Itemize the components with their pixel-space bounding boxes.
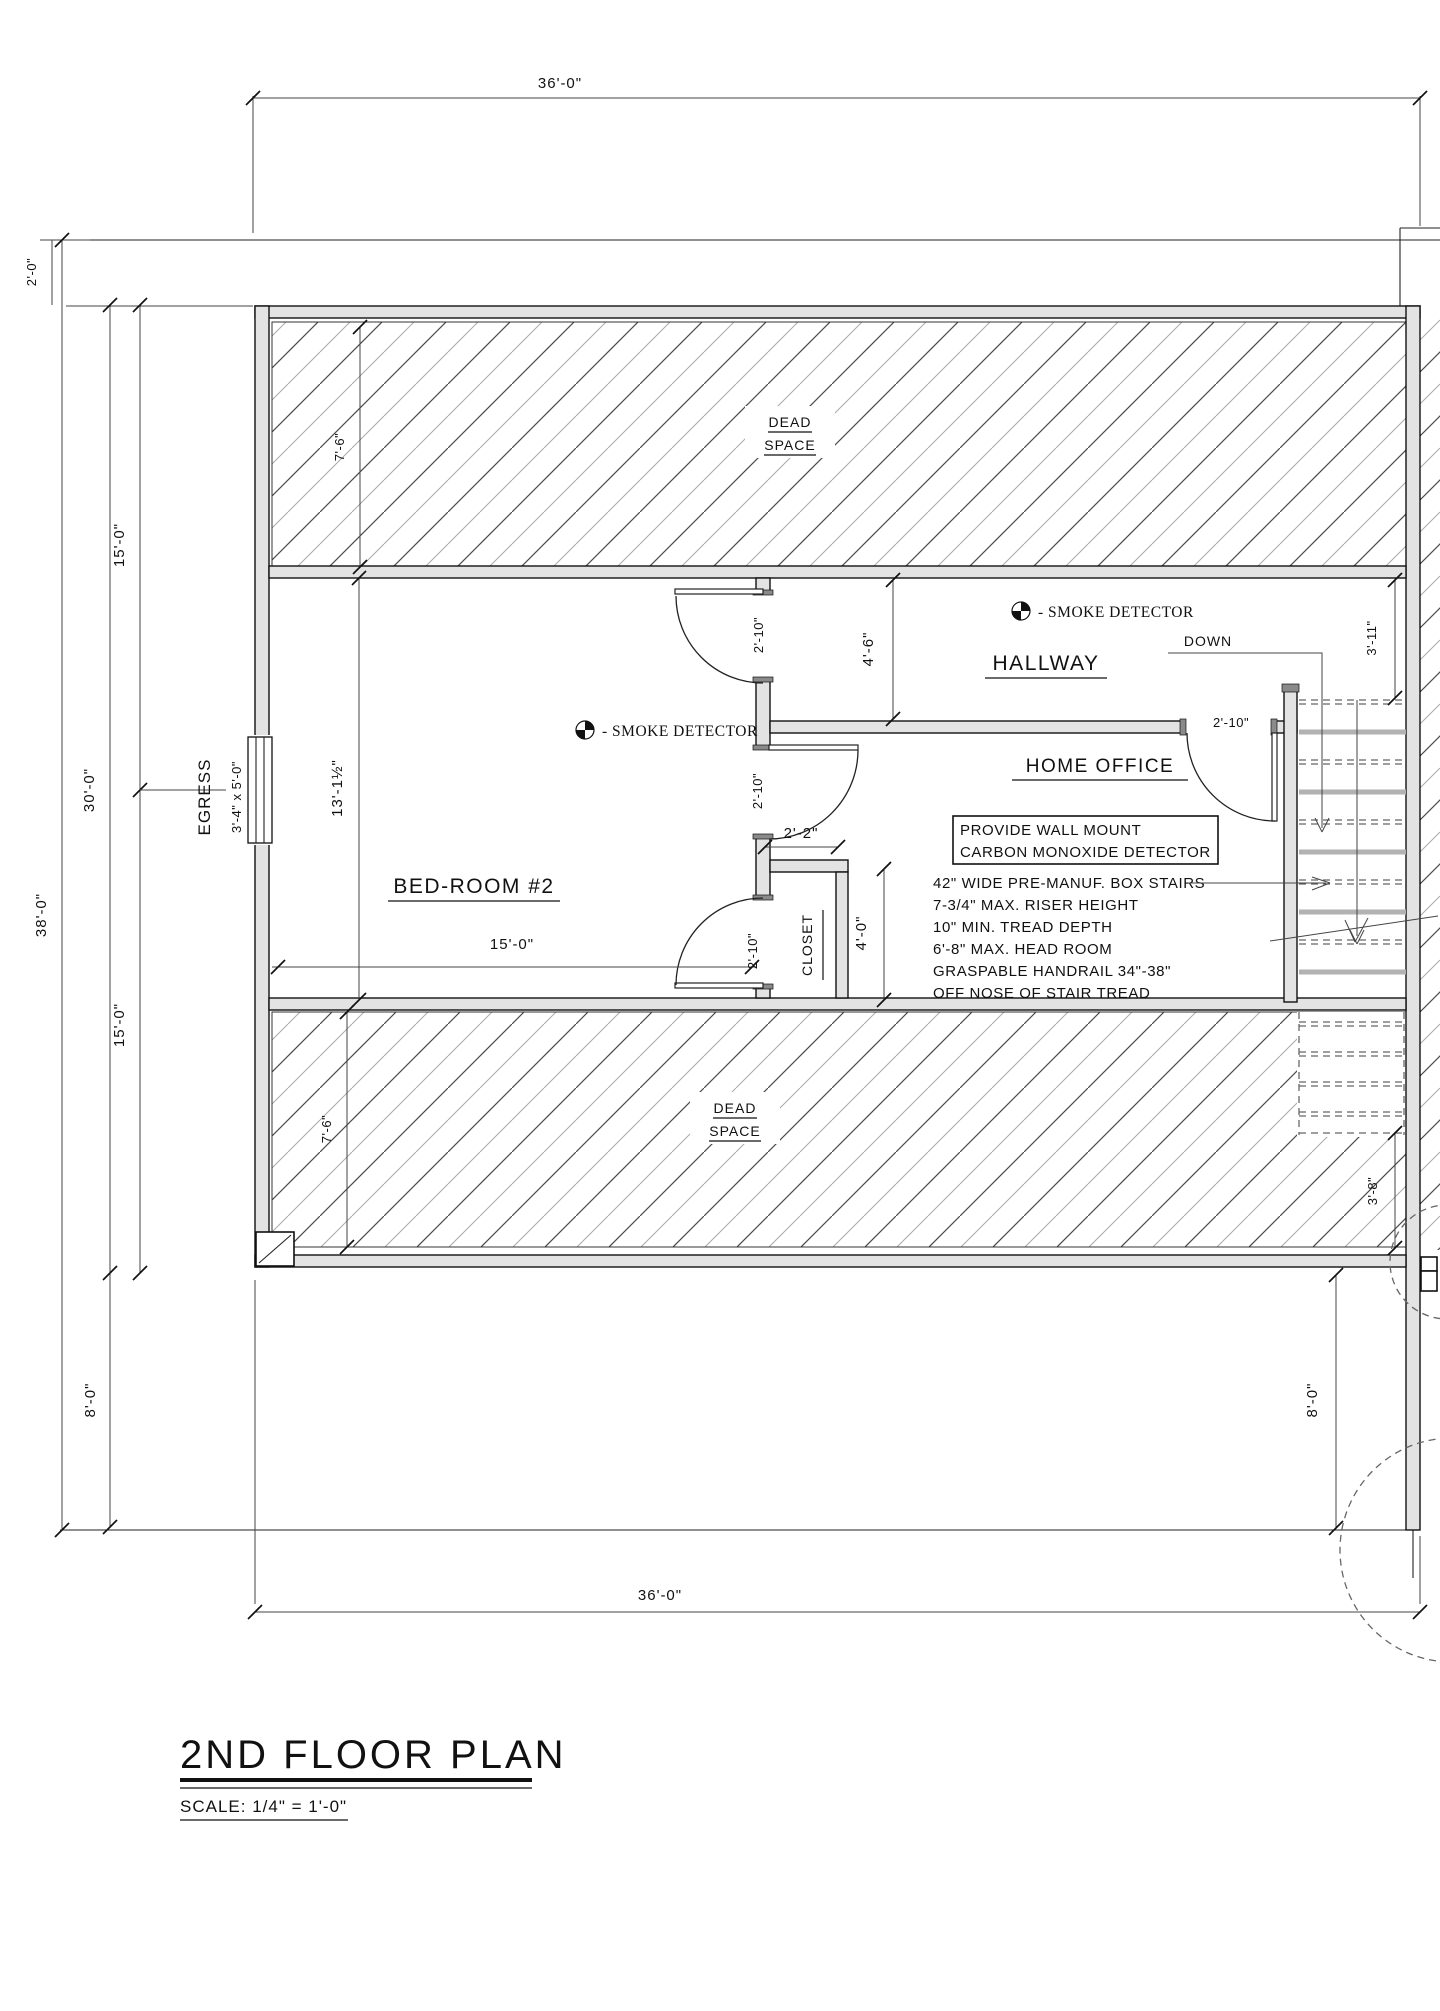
- jamb: [753, 834, 773, 839]
- smoke-detector-quadrant: [576, 730, 585, 739]
- office-east-door-swing: [1187, 733, 1275, 821]
- home-office-label: HOME OFFICE: [1026, 756, 1174, 777]
- smoke-detector-quadrant: [1021, 602, 1030, 611]
- wall-stair-cap: [1282, 684, 1299, 692]
- smoke-detector-bedroom-label: - SMOKE DETECTOR: [602, 723, 758, 740]
- smoke-detector-hallway-label: - SMOKE DETECTOR: [1038, 604, 1194, 621]
- closet-label: CLOSET: [799, 914, 815, 976]
- wall-bedroom-seg3: [756, 837, 770, 898]
- dim-roof-overhang: 2'-0": [24, 258, 39, 286]
- dashed-arc-large: [1340, 1438, 1440, 1662]
- down-arrowhead: [1315, 818, 1322, 832]
- wall-stair: [1284, 690, 1297, 1002]
- dim-closet-door: 2'-10": [745, 933, 760, 969]
- dead-space-top-label-1: DEAD: [769, 414, 812, 430]
- dead-space-top-label-2: SPACE: [764, 437, 815, 453]
- stair-note-line3: 10" MIN. TREAD DEPTH: [933, 919, 1113, 936]
- dim-dead-space-bottom: 7'-6": [319, 1115, 334, 1143]
- dim-lower-roof-left: 8'-0": [82, 1383, 99, 1418]
- dim-stair-bottom: 3'-8": [1365, 1177, 1380, 1205]
- office-west-door-leaf: [769, 745, 858, 750]
- smoke-detector-hallway: - SMOKE DETECTOR: [1012, 602, 1194, 621]
- dim-lower-roof-right: 8'-0": [1304, 1383, 1321, 1418]
- dim-bedroom-width: 15'-0": [490, 936, 534, 953]
- drawing-title: 2ND FLOOR PLAN: [180, 1733, 567, 1777]
- smoke-detector-quadrant: [585, 721, 594, 730]
- title-underline-heavy: [180, 1778, 532, 1782]
- stair-note-line5: GRASPABLE HANDRAIL 34"-38": [933, 963, 1171, 980]
- dim-lower-half: 15'-0": [111, 1003, 128, 1047]
- wall-bedroom-seg2: [756, 680, 770, 748]
- right-roof-strip: [1420, 310, 1440, 1250]
- co-note-line2: CARBON MONOXIDE DETECTOR: [960, 844, 1211, 861]
- egress-window-frame: [248, 737, 272, 843]
- stair-note-line2: 7-3/4" MAX. RISER HEIGHT: [933, 897, 1139, 914]
- title-block: 2ND FLOOR PLAN SCALE: 1/4" = 1'-0": [180, 1733, 567, 1820]
- wall-interior-north: [269, 566, 1406, 578]
- wall-south: [255, 1255, 1406, 1267]
- dim-upper-half: 15'-0": [111, 523, 128, 567]
- dim-bedroom-height: 13'-1½": [329, 759, 346, 817]
- dim-office-door-east: 2'-10": [1213, 715, 1249, 730]
- down-label: DOWN: [1184, 633, 1232, 649]
- dim-overall-height: 38'-0": [33, 893, 50, 937]
- dim-stair-top: 3'-11": [1364, 620, 1379, 655]
- dim-dead-space-top: 7'-6": [332, 433, 347, 461]
- dim-closet-depth: 4'-0": [853, 916, 870, 951]
- egress-size-label: 3'-4" x 5'-0": [229, 761, 244, 833]
- bedroom-door-swing: [676, 596, 763, 683]
- dim-office-door-west: 2'-10": [750, 773, 765, 809]
- stair-run-arrowhead: [1350, 930, 1357, 944]
- stair-break-mark: [1345, 920, 1355, 942]
- wall-east: [1406, 306, 1420, 1530]
- dead-space-hatch: [272, 310, 1440, 1250]
- notes: PROVIDE WALL MOUNT CARBON MONOXIDE DETEC…: [933, 816, 1330, 1002]
- east-wall-detail-2: [1421, 1271, 1437, 1291]
- stair-note-line1: 42" WIDE PRE-MANUF. BOX STAIRS: [933, 875, 1205, 892]
- smoke-detector-quadrant: [1012, 611, 1021, 620]
- office-east-door-leaf: [1272, 733, 1277, 821]
- dead-space-top-area: [272, 322, 1406, 566]
- down-leader: [1168, 653, 1322, 828]
- wall-interior-south: [269, 998, 1406, 1010]
- east-wall-detail-1: [1421, 1257, 1437, 1271]
- dim-hallway-width: 4'-6": [860, 632, 877, 667]
- floor-plan-canvas: 36'-0" 36'-0" 38'-0" 2'-0" 30'-0" 8'-0" …: [0, 0, 1440, 2006]
- closet-door-leaf: [675, 983, 763, 988]
- hallway-label: HALLWAY: [993, 652, 1100, 675]
- smoke-detector-bedroom: - SMOKE DETECTOR: [576, 721, 758, 740]
- wall-closet-north: [770, 860, 848, 872]
- dim-closet-width: 2'-2": [784, 825, 819, 842]
- smoke-detector-icon: [576, 721, 594, 739]
- drawing-scale: SCALE: 1/4" = 1'-0": [180, 1797, 347, 1816]
- stair-note-line4: 6'-8" MAX. HEAD ROOM: [933, 941, 1112, 958]
- bedroom-door-leaf: [675, 589, 763, 594]
- dim-interior-height: 30'-0": [81, 768, 98, 812]
- wall-north: [255, 306, 1420, 318]
- bedroom-label: BED-ROOM #2: [393, 875, 554, 898]
- dead-space-bottom-area: [272, 1012, 1406, 1247]
- wall-closet-east: [836, 872, 848, 998]
- dead-space-bottom-label-2: SPACE: [709, 1123, 760, 1139]
- co-note-line1: PROVIDE WALL MOUNT: [960, 822, 1141, 839]
- floor-plan-page: 36'-0" 36'-0" 38'-0" 2'-0" 30'-0" 8'-0" …: [0, 0, 1440, 2006]
- dim-bedroom-door: 2'-10": [751, 617, 766, 653]
- egress-label: EGRESS: [195, 759, 214, 836]
- egress-window: [248, 735, 273, 845]
- stair-note-line6: OFF NOSE OF STAIR TREAD: [933, 985, 1150, 1002]
- dead-space-bottom-label-1: DEAD: [714, 1100, 757, 1116]
- dim-overall-top: 36'-0": [538, 75, 582, 92]
- jamb: [1180, 719, 1186, 735]
- wall-hall-office: [770, 721, 1183, 733]
- stair-hidden-cutout: [1297, 1012, 1406, 1137]
- dim-overall-bottom: 36'-0": [638, 1587, 682, 1604]
- smoke-detector-icon: [1012, 602, 1030, 620]
- jamb: [753, 677, 773, 682]
